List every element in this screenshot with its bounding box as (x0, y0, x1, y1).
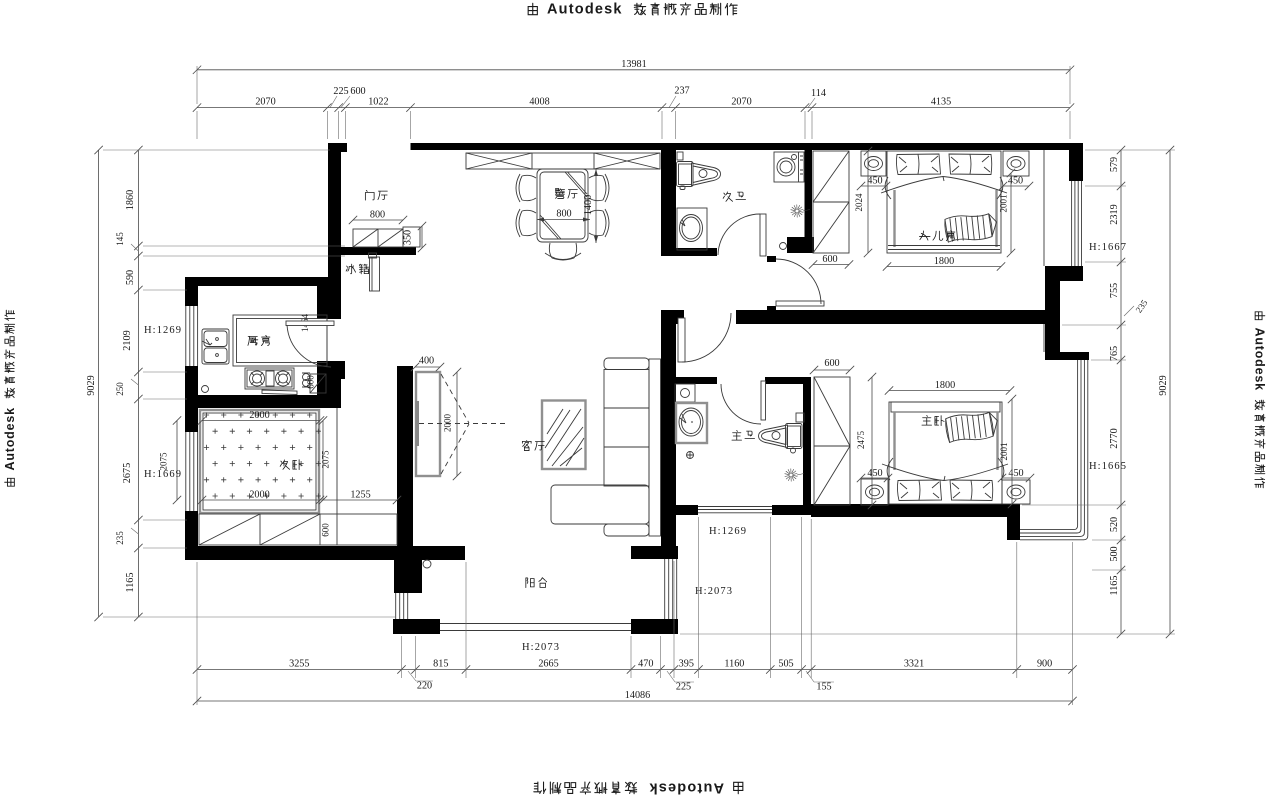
svg-text:450: 450 (867, 176, 882, 187)
svg-text:H:1269: H:1269 (144, 325, 182, 336)
svg-text:1800: 1800 (934, 256, 954, 267)
svg-text:600: 600 (822, 254, 837, 265)
svg-text:395: 395 (679, 659, 694, 670)
svg-text:470: 470 (638, 659, 653, 670)
svg-text:2319: 2319 (1109, 204, 1120, 224)
svg-text:505: 505 (778, 659, 793, 670)
svg-text:755: 755 (1109, 283, 1120, 298)
svg-text:2770: 2770 (1109, 428, 1120, 448)
svg-text:800: 800 (556, 209, 571, 220)
svg-text:1255: 1255 (350, 490, 370, 501)
svg-text:2070: 2070 (255, 97, 275, 108)
svg-text:1165: 1165 (1109, 576, 1120, 596)
svg-text:600: 600 (350, 86, 365, 97)
svg-text:2001: 2001 (999, 443, 1009, 461)
svg-text:2075: 2075 (159, 452, 169, 471)
svg-text:225: 225 (676, 682, 691, 693)
svg-text:590: 590 (125, 270, 136, 285)
svg-text:225: 225 (333, 86, 348, 97)
svg-text:2675: 2675 (122, 463, 133, 483)
svg-text:3255: 3255 (289, 659, 309, 670)
svg-text:450: 450 (867, 468, 882, 479)
svg-text:9029: 9029 (86, 375, 97, 395)
svg-text:250: 250 (115, 382, 125, 396)
svg-text:900: 900 (1037, 659, 1052, 670)
svg-text:H:1269: H:1269 (709, 526, 747, 537)
svg-text:520: 520 (1109, 517, 1120, 532)
svg-text:2000: 2000 (249, 410, 269, 421)
svg-text:600: 600 (824, 358, 839, 369)
svg-text:155: 155 (816, 682, 831, 693)
svg-text:2000: 2000 (249, 490, 269, 501)
svg-text:2475: 2475 (856, 431, 866, 450)
svg-text:500: 500 (1109, 546, 1120, 561)
svg-text:815: 815 (433, 659, 448, 670)
svg-text:1800: 1800 (935, 380, 955, 391)
svg-text:145: 145 (115, 232, 125, 246)
svg-text:579: 579 (1109, 157, 1120, 172)
svg-text:Autodesk: Autodesk (648, 780, 724, 796)
svg-text:2024: 2024 (854, 193, 864, 212)
svg-text:1860: 1860 (125, 190, 136, 210)
svg-text:Autodesk: Autodesk (1253, 328, 1267, 391)
svg-text:14086: 14086 (625, 690, 650, 701)
svg-text:2001: 2001 (999, 195, 1009, 213)
svg-text:4135: 4135 (931, 97, 951, 108)
svg-text:1160: 1160 (724, 659, 744, 670)
svg-text:600: 600 (306, 375, 316, 389)
svg-text:450: 450 (1008, 468, 1023, 479)
svg-text:237: 237 (674, 86, 689, 97)
svg-text:114: 114 (811, 88, 826, 99)
svg-text:1022: 1022 (368, 97, 388, 108)
svg-text:4008: 4008 (529, 97, 549, 108)
svg-text:350: 350 (403, 230, 414, 245)
svg-text:2070: 2070 (731, 97, 751, 108)
svg-text:2075: 2075 (321, 450, 331, 469)
svg-text:2109: 2109 (122, 330, 133, 350)
svg-text:800: 800 (370, 210, 385, 221)
svg-text:400: 400 (419, 356, 434, 367)
svg-text:1165: 1165 (125, 573, 136, 593)
svg-text:H:1669: H:1669 (144, 469, 182, 480)
svg-text:765: 765 (1109, 346, 1120, 361)
svg-text:9029: 9029 (1158, 375, 1169, 395)
svg-text:Autodesk: Autodesk (547, 2, 623, 18)
svg-text:Autodesk: Autodesk (3, 407, 17, 470)
svg-text:2665: 2665 (538, 659, 558, 670)
svg-text:600: 600 (321, 523, 331, 537)
svg-text:2000: 2000 (443, 414, 453, 433)
svg-text:235: 235 (115, 531, 125, 545)
svg-text:1400: 1400 (583, 195, 594, 215)
svg-text:220: 220 (417, 681, 432, 692)
svg-text:H:2073: H:2073 (695, 586, 733, 597)
svg-text:3321: 3321 (904, 659, 924, 670)
svg-text:H:2073: H:2073 (522, 642, 560, 653)
svg-text:450: 450 (1008, 176, 1023, 187)
svg-text:13981: 13981 (621, 59, 646, 70)
